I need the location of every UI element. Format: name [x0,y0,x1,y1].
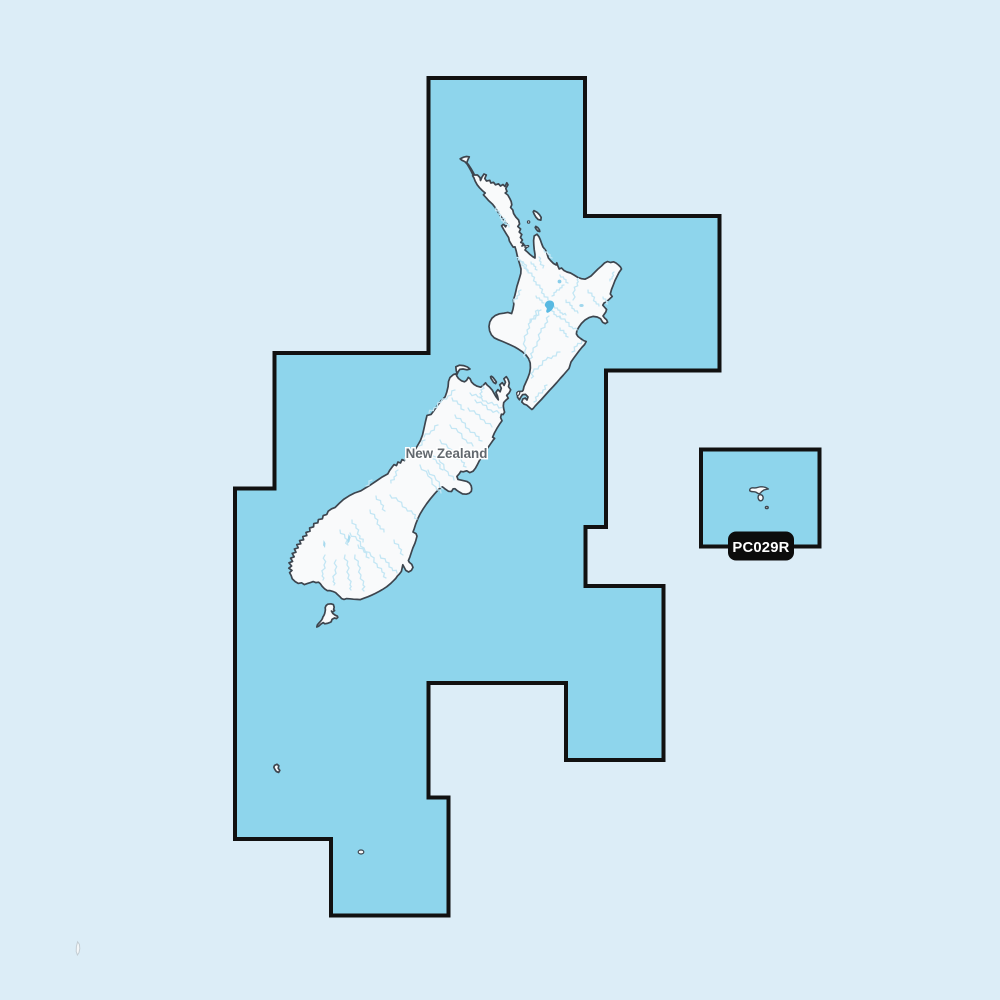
svg-text:PC029R: PC029R [732,540,789,556]
svg-text:New Zealand: New Zealand [406,446,488,461]
